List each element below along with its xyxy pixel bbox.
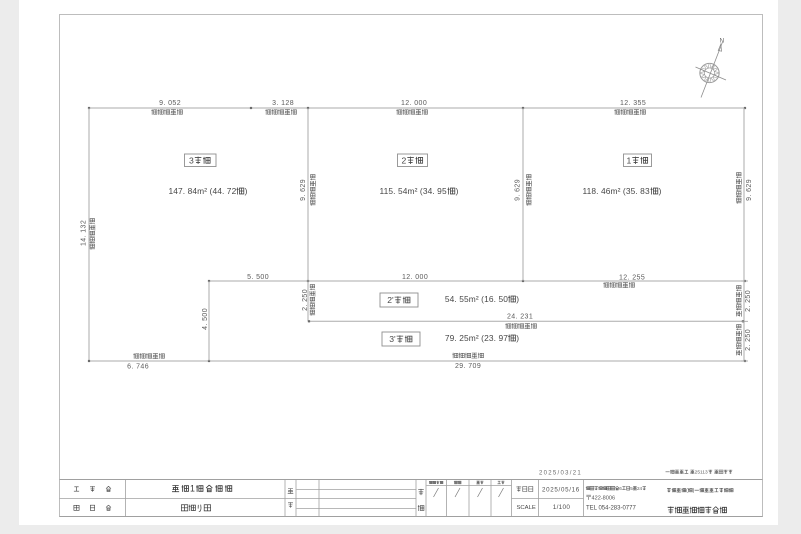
svg-text:2. 250: 2. 250 bbox=[745, 290, 752, 312]
svg-text:118. 46m² (35. 83: 118. 46m² (35. 83 bbox=[583, 186, 650, 196]
svg-text:12. 255: 12. 255 bbox=[619, 274, 645, 281]
svg-text:3': 3' bbox=[389, 334, 396, 344]
svg-text:2025/03/21: 2025/03/21 bbox=[539, 470, 582, 476]
svg-text:24. 231: 24. 231 bbox=[507, 313, 533, 320]
svg-text:6: 6 bbox=[619, 486, 622, 491]
svg-text:54. 55m² (16. 50: 54. 55m² (16. 50 bbox=[445, 294, 508, 304]
svg-text:9. 052: 9. 052 bbox=[159, 100, 181, 107]
svg-text:TEL 054-283-0777: TEL 054-283-0777 bbox=[586, 506, 636, 512]
svg-text:1: 1 bbox=[190, 484, 195, 494]
svg-text:3: 3 bbox=[189, 155, 194, 165]
svg-text:SCALE: SCALE bbox=[517, 505, 536, 511]
svg-text:147. 84m² (44. 72: 147. 84m² (44. 72 bbox=[169, 186, 237, 196]
svg-text:5. 500: 5. 500 bbox=[247, 274, 269, 281]
svg-text:2. 250: 2. 250 bbox=[745, 329, 752, 351]
svg-text:29. 709: 29. 709 bbox=[455, 363, 481, 370]
svg-text:1: 1 bbox=[627, 155, 632, 165]
svg-text:79. 25m² (23. 97: 79. 25m² (23. 97 bbox=[445, 333, 508, 343]
svg-text:14. 132: 14. 132 bbox=[81, 220, 88, 246]
svg-text:12. 355: 12. 355 bbox=[620, 100, 646, 107]
svg-text:2025/05/16: 2025/05/16 bbox=[542, 487, 580, 494]
svg-text:12. 000: 12. 000 bbox=[402, 274, 428, 281]
svg-text:5: 5 bbox=[630, 486, 633, 491]
svg-text:): ) bbox=[456, 186, 459, 196]
svg-text:24: 24 bbox=[637, 486, 643, 491]
svg-text:2: 2 bbox=[402, 155, 407, 165]
svg-text:115. 54m² (34. 95: 115. 54m² (34. 95 bbox=[380, 186, 447, 196]
svg-text:9. 629: 9. 629 bbox=[746, 179, 753, 201]
svg-text:): ) bbox=[245, 186, 248, 196]
svg-text:12. 000: 12. 000 bbox=[401, 100, 427, 107]
svg-text:6. 746: 6. 746 bbox=[127, 363, 149, 370]
svg-text:2': 2' bbox=[387, 295, 394, 305]
svg-text:): ) bbox=[516, 294, 519, 304]
svg-text:9. 629: 9. 629 bbox=[514, 179, 521, 201]
svg-text:422-8006: 422-8006 bbox=[591, 495, 615, 501]
svg-text:9. 629: 9. 629 bbox=[300, 179, 307, 201]
svg-text:): ) bbox=[516, 333, 519, 343]
svg-text:2. 250: 2. 250 bbox=[302, 289, 309, 311]
svg-text:25113: 25113 bbox=[695, 470, 708, 476]
svg-text:1/100: 1/100 bbox=[553, 504, 571, 511]
svg-text:4. 500: 4. 500 bbox=[202, 308, 209, 330]
svg-text:N: N bbox=[720, 38, 725, 45]
svg-text:3. 128: 3. 128 bbox=[272, 100, 294, 107]
svg-text:): ) bbox=[659, 186, 662, 196]
